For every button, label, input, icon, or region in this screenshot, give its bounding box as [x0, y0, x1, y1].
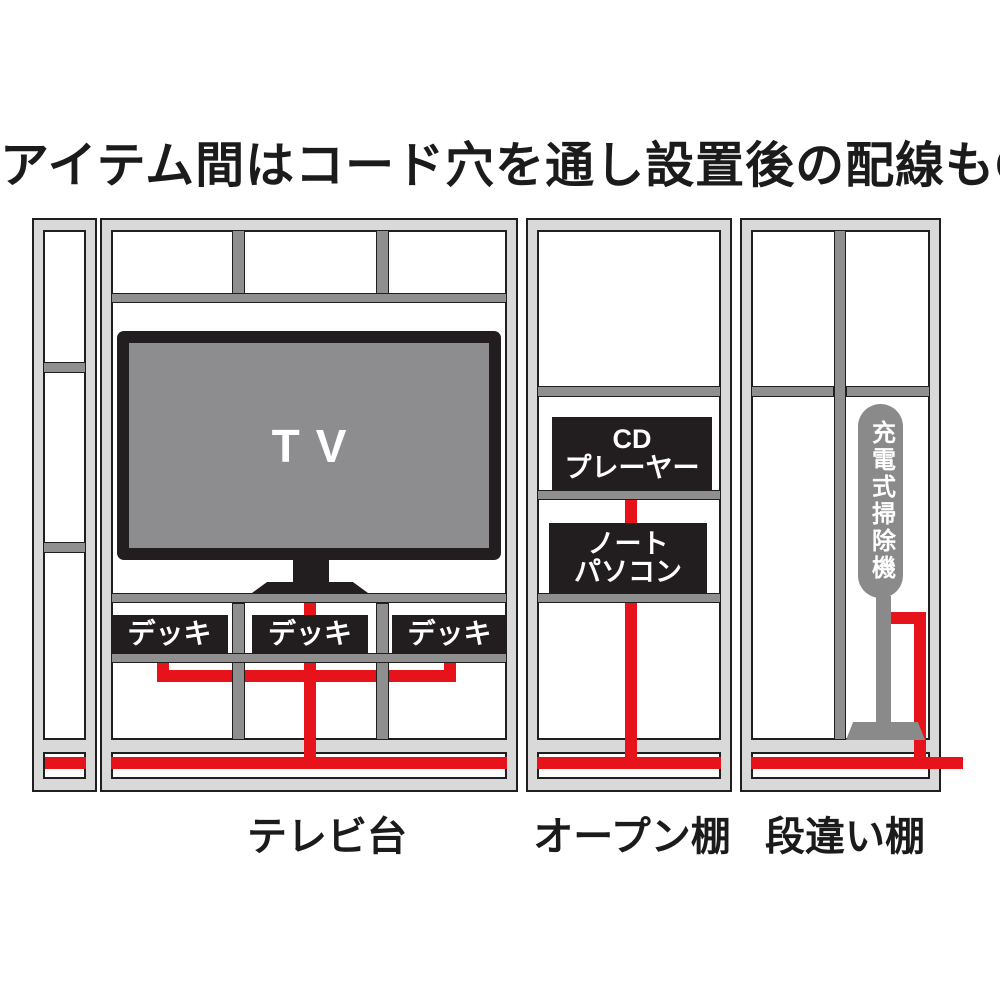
tv-top-row-post — [232, 230, 245, 294]
diagram-cable-routing: アイテム間はコード穴を通し設置後の配線もOK TV デッキ デッキ デッキ — [0, 0, 1000, 1000]
label-staggered-shelf: 段違い棚 — [765, 804, 925, 862]
deck-shelf — [111, 653, 507, 663]
deck-row-post — [232, 603, 245, 740]
staggered-shelf-right — [846, 386, 930, 397]
deck-box: デッキ — [252, 615, 368, 653]
vacuum-label: 充電式掃除機 — [869, 420, 893, 582]
cable-bottom-run — [751, 757, 930, 769]
left-unit-shelf — [43, 362, 86, 373]
tv-stand-base — [252, 582, 368, 593]
cable-cd-drop — [625, 500, 637, 523]
open-shelf-top-shelf — [537, 386, 721, 397]
staggered-shelf-left — [751, 386, 834, 397]
cable-bottom-run — [45, 757, 86, 769]
laptop-label: パソコン — [574, 558, 682, 586]
cable-vacuum-drop — [914, 612, 926, 769]
label-open-shelf: オープン棚 — [533, 804, 731, 862]
deck-label: デッキ — [407, 619, 491, 648]
tv-top-row-post — [376, 230, 389, 294]
cable-laptop-drop — [625, 603, 637, 769]
tv-label: TV — [256, 419, 363, 473]
cd-player-label: CD — [613, 425, 652, 453]
label-tv-stand: テレビ台 — [247, 804, 407, 862]
deck-box: デッキ — [392, 615, 507, 653]
open-shelf-low-shelf — [537, 593, 721, 603]
deck-box: デッキ — [111, 615, 228, 653]
deck-row-post — [376, 603, 389, 740]
left-partial-unit-cavity — [43, 230, 86, 740]
page-title: アイテム間はコード穴を通し設置後の配線もOK — [0, 126, 1000, 197]
tv-base-shelf — [111, 593, 507, 603]
cable-bottom-exit — [926, 757, 963, 769]
tv-stand-neck — [293, 560, 329, 582]
cd-player-label: プレーヤー — [565, 454, 700, 482]
open-shelf-mid-shelf — [537, 490, 721, 500]
deck-label: デッキ — [268, 619, 352, 648]
vacuum-base — [846, 722, 925, 740]
vacuum-icon: 充電式掃除機 — [858, 404, 903, 598]
cable-tv-drop-lower — [304, 663, 316, 769]
laptop-box: ノート パソコン — [549, 523, 707, 593]
laptop-label: ノート — [588, 530, 669, 558]
deck-label: デッキ — [127, 619, 211, 648]
cable-bottom-run — [111, 757, 507, 769]
cable-tv-drop-upper — [304, 603, 316, 615]
vacuum-stick — [876, 596, 891, 722]
cd-player-box: CD プレーヤー — [552, 417, 712, 490]
tv-top-shelf — [111, 293, 507, 303]
cable-bottom-run — [537, 757, 721, 769]
left-unit-shelf — [43, 542, 86, 553]
tv-screen: TV — [129, 343, 489, 548]
staggered-center-post — [834, 230, 846, 740]
